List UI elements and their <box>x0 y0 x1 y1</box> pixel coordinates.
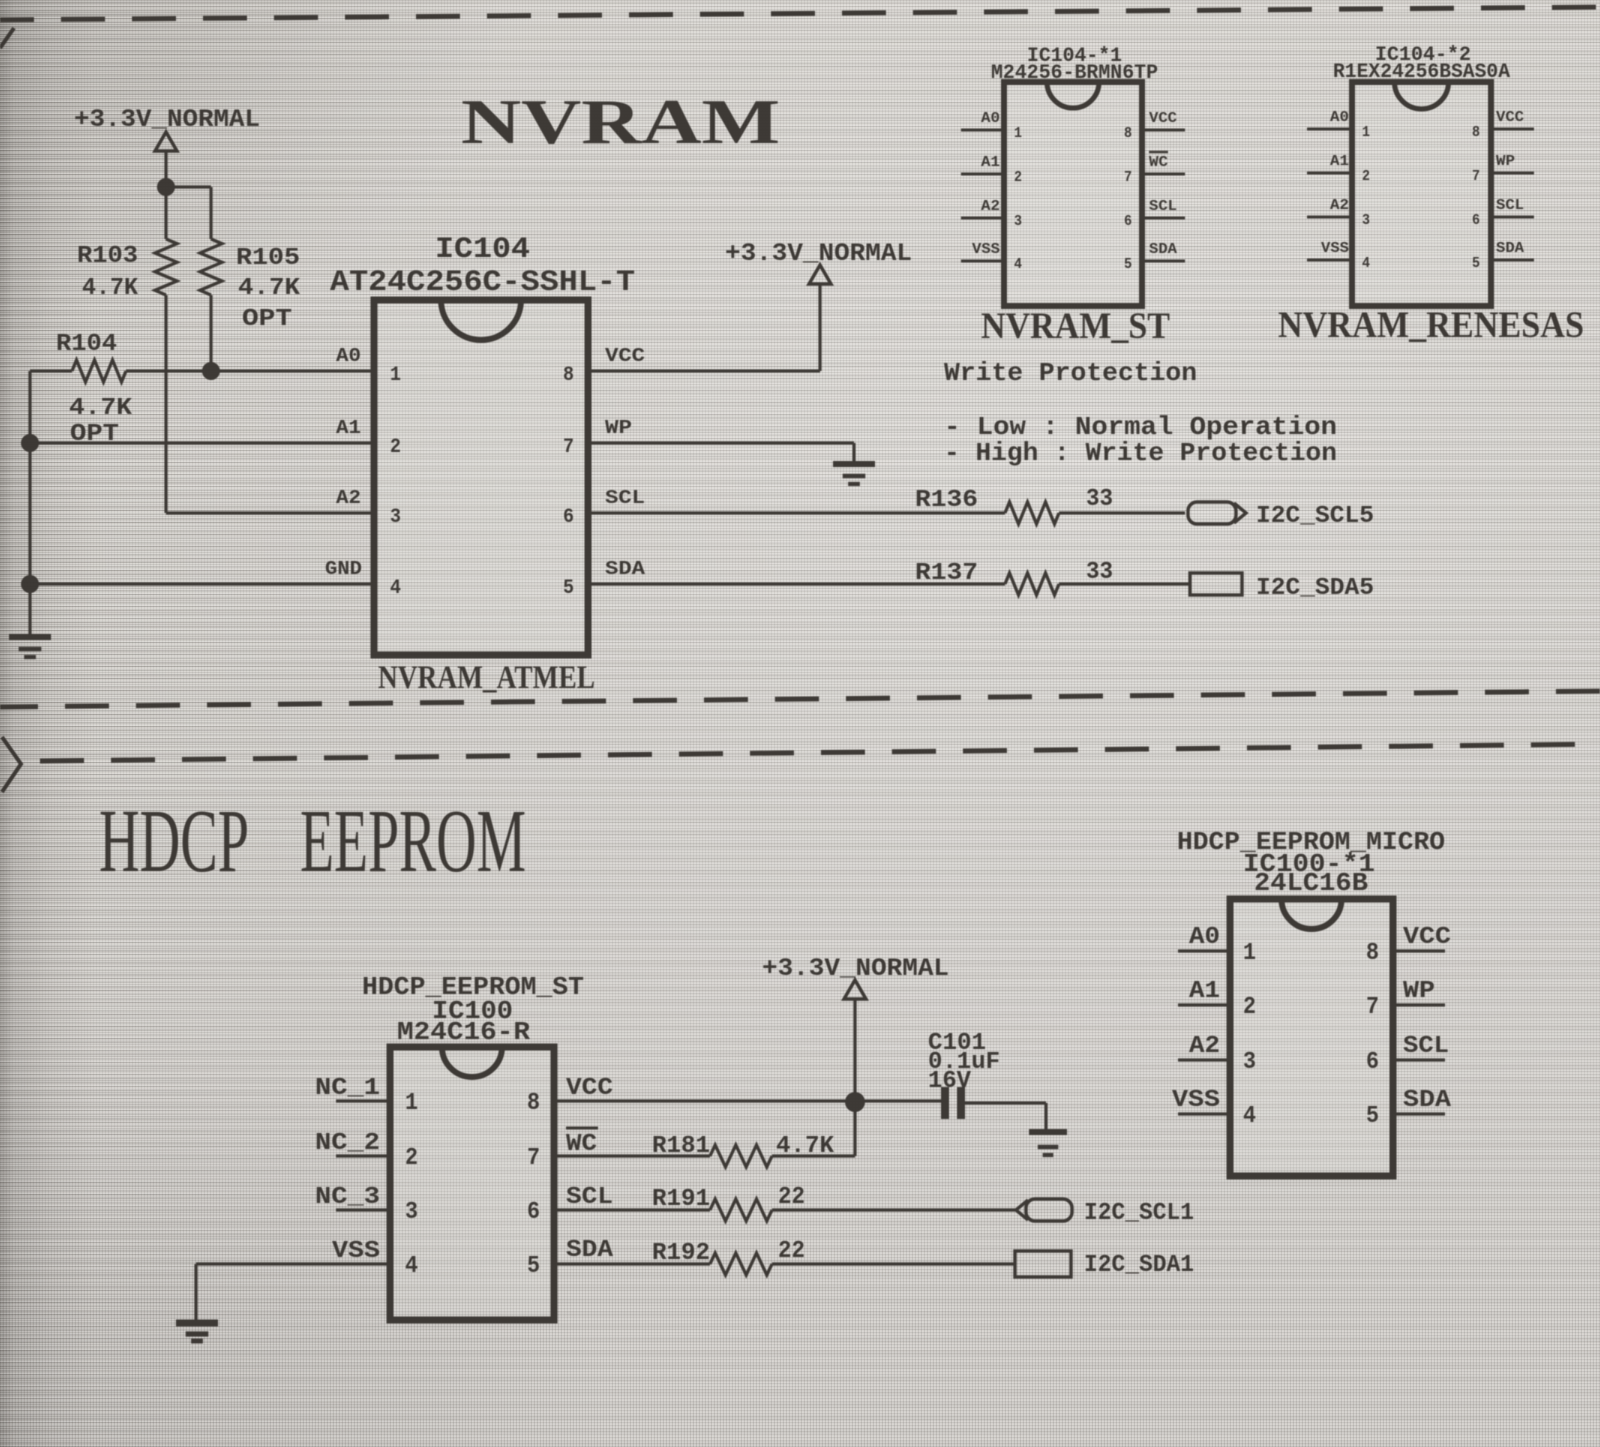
svg-text:3: 3 <box>1014 213 1022 230</box>
svg-text:VCC: VCC <box>1496 109 1524 126</box>
svg-text:WC: WC <box>566 1131 597 1158</box>
svg-text:5: 5 <box>563 577 574 600</box>
svg-text:WC: WC <box>1149 154 1168 171</box>
svg-text:NVRAM_RENESAS: NVRAM_RENESAS <box>1278 305 1584 346</box>
svg-text:VSS: VSS <box>972 241 1000 258</box>
svg-text:2: 2 <box>1014 169 1022 186</box>
svg-text:R192: R192 <box>652 1240 710 1267</box>
svg-text:IC104: IC104 <box>435 233 530 267</box>
svg-text:22: 22 <box>778 1184 805 1211</box>
svg-text:6: 6 <box>563 506 574 529</box>
svg-text:SDA: SDA <box>1496 240 1524 257</box>
svg-text:A2: A2 <box>336 487 361 509</box>
svg-text:6: 6 <box>1366 1049 1379 1076</box>
svg-text:5: 5 <box>1124 256 1132 273</box>
svg-text:6: 6 <box>527 1199 540 1226</box>
svg-text:6: 6 <box>1472 212 1480 229</box>
svg-text:5: 5 <box>1472 255 1480 272</box>
svg-text:5: 5 <box>527 1253 540 1280</box>
svg-text:4.7K: 4.7K <box>82 275 139 302</box>
svg-text:16V: 16V <box>928 1068 972 1095</box>
svg-text:R104: R104 <box>56 331 117 358</box>
svg-text:R103: R103 <box>77 243 138 270</box>
svg-text:6: 6 <box>1124 213 1132 230</box>
svg-text:4: 4 <box>1014 256 1022 273</box>
svg-text:SCL: SCL <box>1149 198 1177 215</box>
svg-text:NC_1: NC_1 <box>315 1075 380 1102</box>
svg-text:4.7K: 4.7K <box>238 275 301 302</box>
svg-text:I2C_SDA5: I2C_SDA5 <box>1256 575 1374 602</box>
svg-text:VCC: VCC <box>566 1075 613 1102</box>
svg-text:4: 4 <box>1362 255 1370 272</box>
svg-text:Write Protection: Write Protection <box>944 358 1197 388</box>
svg-text:SCL: SCL <box>1403 1033 1449 1060</box>
svg-text:SDA: SDA <box>1403 1087 1452 1114</box>
svg-text:1: 1 <box>390 364 401 387</box>
svg-text:A2: A2 <box>981 198 1000 215</box>
svg-text:7: 7 <box>1366 994 1379 1021</box>
svg-text:8: 8 <box>1366 940 1379 967</box>
svg-text:HDCP: HDCP <box>99 792 249 891</box>
svg-text:NC_3: NC_3 <box>315 1184 380 1211</box>
svg-text:VSS: VSS <box>1321 240 1349 257</box>
svg-text:33: 33 <box>1086 559 1113 586</box>
svg-text:R137: R137 <box>915 560 978 587</box>
svg-text:7: 7 <box>527 1145 540 1172</box>
svg-text:A0: A0 <box>1330 109 1349 126</box>
svg-text:8: 8 <box>1124 125 1132 142</box>
svg-text:+3.3V_NORMAL: +3.3V_NORMAL <box>725 239 912 268</box>
svg-text:+3.3V_NORMAL: +3.3V_NORMAL <box>74 105 260 134</box>
svg-text:3: 3 <box>1362 212 1370 229</box>
svg-text:NVRAM_ST: NVRAM_ST <box>981 306 1170 347</box>
svg-text:I2C_SDA1: I2C_SDA1 <box>1084 1252 1194 1279</box>
svg-text:SDA: SDA <box>605 558 646 580</box>
svg-text:2: 2 <box>390 436 401 459</box>
svg-text:SDA: SDA <box>566 1237 614 1264</box>
svg-text:7: 7 <box>563 436 574 459</box>
svg-text:SCL: SCL <box>1496 197 1524 214</box>
svg-text:A2: A2 <box>1189 1033 1220 1060</box>
svg-text:4: 4 <box>405 1253 418 1280</box>
svg-text:VCC: VCC <box>605 345 645 367</box>
svg-text:1: 1 <box>405 1090 418 1117</box>
svg-text:I2C_SCL1: I2C_SCL1 <box>1084 1200 1194 1227</box>
svg-text:8: 8 <box>563 364 574 387</box>
svg-text:WP: WP <box>605 417 632 439</box>
svg-text:EEPROM: EEPROM <box>300 792 526 891</box>
svg-text:SDA: SDA <box>1149 241 1177 258</box>
svg-text:4: 4 <box>1243 1103 1256 1130</box>
svg-text:A0: A0 <box>1189 924 1220 951</box>
svg-text:2: 2 <box>405 1145 418 1172</box>
svg-text:4: 4 <box>390 577 401 600</box>
svg-text:2: 2 <box>1243 994 1256 1021</box>
svg-text:R181: R181 <box>652 1133 710 1160</box>
svg-text:WP: WP <box>1496 153 1515 170</box>
svg-text:NVRAM_ATMEL: NVRAM_ATMEL <box>378 660 595 696</box>
svg-text:5: 5 <box>1366 1103 1379 1130</box>
svg-text:NC_2: NC_2 <box>315 1130 380 1157</box>
svg-text:A1: A1 <box>1330 153 1349 170</box>
svg-text:7: 7 <box>1124 169 1132 186</box>
svg-text:1: 1 <box>1362 124 1370 141</box>
svg-text:R105: R105 <box>236 245 300 272</box>
svg-text:1: 1 <box>1014 125 1022 142</box>
svg-text:8: 8 <box>1472 124 1480 141</box>
svg-text:33: 33 <box>1086 486 1113 513</box>
svg-text:I2C_SCL5: I2C_SCL5 <box>1256 503 1374 530</box>
svg-text:A1: A1 <box>336 417 361 439</box>
svg-text:A1: A1 <box>981 154 1000 171</box>
svg-text:4.7K: 4.7K <box>69 395 133 422</box>
svg-text:A1: A1 <box>1189 978 1220 1005</box>
svg-text:24LC16B: 24LC16B <box>1254 868 1368 898</box>
svg-text:R136: R136 <box>915 487 978 514</box>
svg-text:VSS: VSS <box>1172 1087 1220 1114</box>
svg-text:AT24C256C-SSHL-T: AT24C256C-SSHL-T <box>330 266 635 300</box>
svg-text:22: 22 <box>778 1238 805 1265</box>
svg-text:7: 7 <box>1472 168 1480 185</box>
svg-text:SCL: SCL <box>605 487 645 509</box>
svg-text:R191: R191 <box>652 1186 710 1213</box>
svg-text:A2: A2 <box>1330 197 1349 214</box>
svg-text:VCC: VCC <box>1403 924 1451 951</box>
svg-text:NVRAM: NVRAM <box>461 86 780 157</box>
svg-text:OPT: OPT <box>242 306 292 333</box>
svg-text:3: 3 <box>1243 1049 1256 1076</box>
svg-text:8: 8 <box>527 1090 540 1117</box>
svg-text:2: 2 <box>1362 168 1370 185</box>
svg-text:SCL: SCL <box>566 1184 613 1211</box>
svg-text:VCC: VCC <box>1149 110 1177 127</box>
svg-text:1: 1 <box>1243 940 1256 967</box>
svg-text:A0: A0 <box>336 345 361 367</box>
svg-text:WP: WP <box>1403 978 1435 1005</box>
svg-text:M24C16-R: M24C16-R <box>397 1017 530 1047</box>
svg-text:3: 3 <box>390 506 401 529</box>
svg-text:VSS: VSS <box>332 1238 380 1265</box>
svg-text:- High : Write Protection: - High : Write Protection <box>944 438 1337 468</box>
svg-text:3: 3 <box>405 1199 418 1226</box>
svg-text:GND: GND <box>325 558 362 580</box>
svg-text:A0: A0 <box>981 110 1000 127</box>
